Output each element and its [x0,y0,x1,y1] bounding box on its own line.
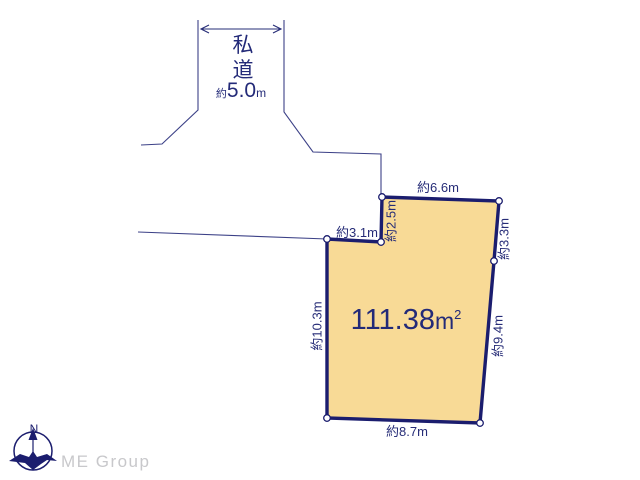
vertex-marker [496,198,503,205]
compass-north-label: N [30,422,39,436]
site-plan-page: 私 道 約5.0m 約6.6m 約3.1m 約2.5m 約3.3m 約9.4m … [0,0,640,480]
dim-label-right-upper: 約3.3m [497,218,512,260]
road-width-label: 約5.0m [216,79,266,102]
vertex-marker [477,420,484,427]
dim-label-right-lower: 約9.4m [491,315,506,357]
dim-label-notch-vertical: 約2.5m [384,200,399,242]
vertex-marker [379,194,386,201]
vertex-marker [324,415,331,422]
site-plan-diagram: 私 道 約5.0m 約6.6m 約3.1m 約2.5m 約3.3m 約9.4m … [0,0,640,480]
road-name-char1: 私 [233,34,254,57]
dim-label-left: 約10.3m [310,301,325,350]
dim-label-notch-horizontal: 約3.1m [336,225,378,240]
boundary-line-left [138,232,327,239]
compass: N [9,422,57,470]
road-edge-left [141,20,198,145]
road-edge-right [284,20,381,197]
dim-label-bottom: 約8.7m [386,424,428,439]
area-label: 111.38m2 [351,304,462,336]
logo-text: ME Group [61,452,150,471]
dim-label-top: 約6.6m [417,180,459,195]
vertex-marker [324,236,331,243]
road-width-arrow [201,25,281,33]
